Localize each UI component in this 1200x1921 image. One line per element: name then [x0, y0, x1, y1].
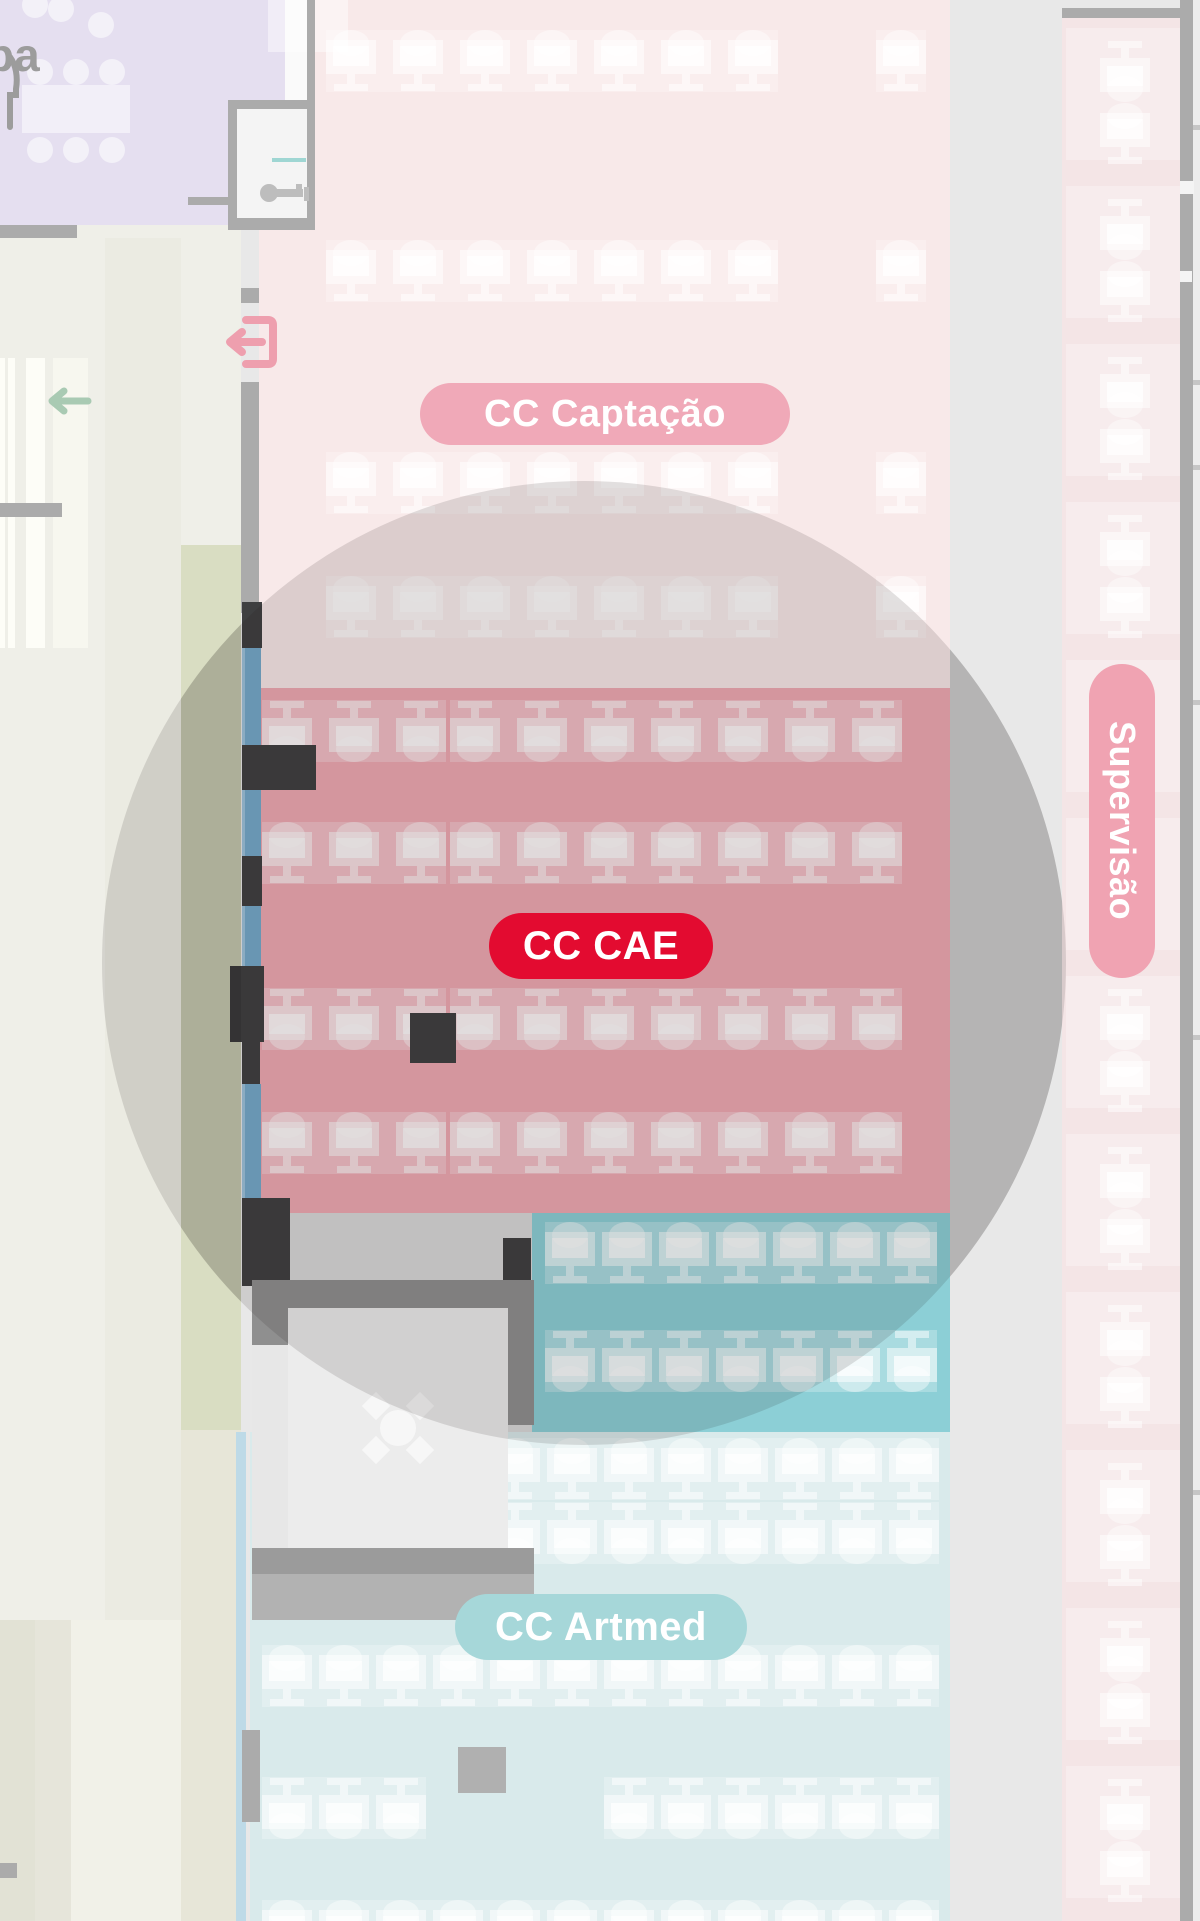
desk-icon: [661, 1438, 711, 1500]
desk-part: [661, 1655, 711, 1689]
desk-icon: [594, 576, 644, 638]
desk-part: [319, 1655, 369, 1689]
desk-part: [548, 74, 556, 84]
desk-part: [283, 1156, 291, 1166]
desk-part: [884, 506, 918, 513]
desk-part: [397, 1785, 405, 1795]
desk-icon: [661, 240, 711, 302]
desk-icon: [594, 30, 644, 92]
desk-part: [659, 1348, 709, 1382]
desk-part: [1121, 463, 1129, 473]
desk-icon: [329, 700, 379, 762]
desk-part: [785, 1122, 835, 1156]
desk-cluster: [876, 240, 926, 302]
desk-part: [401, 84, 435, 91]
wall: [241, 288, 259, 303]
desk-part: [876, 40, 926, 74]
desk-part: [527, 462, 577, 496]
desk-part: [538, 1156, 546, 1166]
desk-part: [511, 1482, 519, 1492]
desk-part: [726, 876, 760, 883]
desk-part: [718, 1910, 768, 1921]
desk-icon: [396, 700, 446, 762]
desk-part: [718, 1655, 768, 1689]
desk-icon: [527, 452, 577, 514]
desk-part: [739, 1482, 747, 1492]
desk-part: [393, 462, 443, 496]
desk-part: [661, 1520, 711, 1554]
desk-part: [584, 718, 634, 752]
desk-part: [604, 1910, 654, 1921]
desk-icon: [785, 988, 835, 1050]
desk-icon: [728, 452, 778, 514]
desk-part: [830, 1348, 880, 1382]
desk-part: [726, 1778, 760, 1785]
desk-cluster: [450, 700, 902, 762]
desk-part: [594, 40, 644, 74]
desk-icon: [718, 1112, 768, 1174]
desk-part: [605, 708, 613, 718]
desk-part: [860, 701, 894, 708]
desk-part: [775, 1795, 825, 1829]
desk-part: [793, 701, 827, 708]
desk-part: [1108, 315, 1142, 322]
desk-part: [783, 1778, 817, 1785]
desk-part: [669, 1492, 703, 1499]
desk-part: [897, 284, 905, 294]
desk-part: [1100, 1219, 1150, 1253]
desk-part: [832, 1520, 882, 1554]
desk-cluster: [450, 822, 902, 884]
desk-part: [1121, 147, 1129, 157]
desk-part: [1121, 305, 1129, 315]
desk-part: [1100, 429, 1150, 463]
desk-part: [547, 1655, 597, 1689]
desk-part: [471, 1156, 479, 1166]
desk-part: [605, 866, 613, 876]
desk-part: [337, 1166, 371, 1173]
desk-part: [584, 832, 634, 866]
desk-cluster: [876, 576, 926, 638]
desk-part: [350, 708, 358, 718]
desk-part: [327, 1778, 361, 1785]
desk-icon: [1100, 40, 1150, 102]
desk-part: [726, 1699, 760, 1706]
desk-icon: [262, 1645, 312, 1707]
desk-part: [460, 40, 510, 74]
desk-cluster: [604, 1777, 939, 1839]
desk-part: [1100, 1693, 1150, 1727]
desk-part: [682, 1785, 690, 1795]
desk-part: [889, 1520, 939, 1554]
desk-icon: [852, 1112, 902, 1174]
desk-icon: [584, 822, 634, 884]
desk-icon: [773, 1330, 823, 1392]
desk-icon: [594, 452, 644, 514]
desk-part: [739, 1689, 747, 1699]
desk-part: [716, 1232, 766, 1266]
desk-cluster: [545, 1222, 937, 1284]
desk-part: [270, 1699, 304, 1706]
desk-icon: [527, 240, 577, 302]
desk-icon: [527, 576, 577, 638]
desk-icon: [319, 1645, 369, 1707]
desk-part: [450, 832, 500, 866]
desk-part: [350, 866, 358, 876]
desk-icon: [527, 30, 577, 92]
desk-part: [908, 1266, 916, 1276]
desk-part: [393, 250, 443, 284]
desk-part: [498, 1699, 532, 1706]
desk-part: [270, 1166, 304, 1173]
desk-part: [525, 701, 559, 708]
desk-icon: [1100, 1051, 1150, 1113]
desk-icon: [1100, 1367, 1150, 1429]
desk-icon: [604, 1777, 654, 1839]
desk-cluster: [326, 452, 778, 514]
desk-part: [1121, 1569, 1129, 1579]
desk-icon: [450, 700, 500, 762]
desk-icon: [1100, 1525, 1150, 1587]
desk-icon: [396, 1112, 446, 1174]
desk-icon: [832, 1900, 882, 1921]
desk-part: [547, 1910, 597, 1921]
zone-label-cc-captacao[interactable]: CC Captação: [420, 383, 790, 445]
desk-icon: [262, 1112, 312, 1174]
desk-part: [659, 989, 693, 996]
desk-part: [376, 1910, 426, 1921]
desk-icon: [547, 1438, 597, 1500]
desk-part: [884, 84, 918, 91]
desk-part: [718, 1795, 768, 1829]
desk-icon: [716, 1330, 766, 1392]
desk-icon: [329, 1112, 379, 1174]
desk-part: [527, 250, 577, 284]
desk-part: [728, 250, 778, 284]
desk-part: [781, 1331, 815, 1338]
desk-part: [319, 1910, 369, 1921]
desk-part: [873, 708, 881, 718]
desk-part: [414, 284, 422, 294]
desk-icon: [1100, 577, 1150, 639]
desk-part: [417, 708, 425, 718]
zone-label-cc-cae[interactable]: CC CAE: [489, 913, 713, 979]
desk-part: [468, 84, 502, 91]
desk-icon: [718, 1900, 768, 1921]
desk-part: [669, 506, 703, 513]
desk-part: [350, 996, 358, 1006]
desk-part: [876, 462, 926, 496]
desk-part: [806, 708, 814, 718]
desk-part: [884, 294, 918, 301]
desk-part: [490, 1655, 540, 1689]
desk-part: [680, 1338, 688, 1348]
desk-part: [775, 1655, 825, 1689]
desk-icon: [490, 1900, 540, 1921]
pillar: [242, 856, 262, 906]
desk-part: [594, 462, 644, 496]
desk-part: [334, 84, 368, 91]
desk-part: [910, 1482, 918, 1492]
desk-icon: [775, 1645, 825, 1707]
desk-part: [726, 1492, 760, 1499]
desk-cluster: [876, 30, 926, 92]
desk-part: [417, 1156, 425, 1166]
desk-icon: [393, 576, 443, 638]
desk-icon: [604, 1502, 654, 1564]
desk-part: [659, 701, 693, 708]
desk-part: [1108, 1263, 1142, 1270]
desk-part: [270, 1778, 304, 1785]
desk-part: [897, 1492, 931, 1499]
desk-part: [775, 1448, 825, 1482]
desk-cluster: [262, 1900, 939, 1921]
desk-part: [661, 40, 711, 74]
desk-part: [326, 586, 376, 620]
desk-part: [1121, 1253, 1129, 1263]
desk-icon: [852, 700, 902, 762]
desk-part: [796, 1785, 804, 1795]
desk-part: [481, 620, 489, 630]
desk-icon: [728, 240, 778, 302]
desk-part: [773, 1232, 823, 1266]
desk-icon: [396, 822, 446, 884]
desk-part: [910, 1785, 918, 1795]
desk-icon: [393, 452, 443, 514]
desk-part: [889, 1448, 939, 1482]
desk-part: [728, 586, 778, 620]
desk-part: [1121, 621, 1129, 631]
desk-part: [262, 1006, 312, 1040]
desk-part: [517, 832, 567, 866]
desk-part: [775, 1520, 825, 1554]
desk-icon: [262, 822, 312, 884]
zone-label-supervisao[interactable]: Supervisão: [1089, 664, 1155, 978]
desk-part: [568, 1482, 576, 1492]
pillar-gray: [458, 1747, 506, 1793]
desk-icon: [517, 822, 567, 884]
desk-icon: [775, 1502, 825, 1564]
wall: [1062, 8, 1193, 18]
desk-icon: [326, 30, 376, 92]
desk-part: [897, 1503, 931, 1510]
desk-part: [1108, 1895, 1142, 1902]
desk-part: [669, 1699, 703, 1706]
desk-part: [1108, 41, 1142, 48]
desk-cluster: [262, 822, 446, 884]
desk-icon: [832, 1645, 882, 1707]
desk-part: [669, 1503, 703, 1510]
desk-part: [612, 1778, 646, 1785]
desk-part: [262, 1655, 312, 1689]
desk-part: [739, 1156, 747, 1166]
desk-part: [785, 718, 835, 752]
desk-part: [908, 1338, 916, 1348]
desk-part: [783, 1492, 817, 1499]
desk-part: [889, 1795, 939, 1829]
desk-part: [262, 1795, 312, 1829]
desk-cluster: [326, 576, 778, 638]
desk-icon: [326, 576, 376, 638]
desk-icon: [329, 822, 379, 884]
desk-part: [873, 1156, 881, 1166]
desk-part: [737, 1338, 745, 1348]
desk-part: [517, 718, 567, 752]
desk-icon: [262, 988, 312, 1050]
desk-part: [739, 1785, 747, 1795]
window-strip: [242, 633, 261, 745]
desk-part: [853, 1785, 861, 1795]
desk-part: [1100, 1061, 1150, 1095]
zone-label-text: CC Artmed: [495, 1605, 707, 1650]
desk-cluster: [326, 30, 778, 92]
desk-part: [667, 1276, 701, 1283]
desk-icon: [728, 576, 778, 638]
desk-part: [1100, 1535, 1150, 1569]
desk-part: [458, 876, 492, 883]
desk-part: [417, 866, 425, 876]
desk-part: [566, 1338, 574, 1348]
desk-part: [887, 1348, 937, 1382]
desk-part: [796, 1510, 804, 1520]
desk-part: [270, 989, 304, 996]
desk-part: [852, 832, 902, 866]
desk-part: [401, 630, 435, 637]
desk-part: [592, 701, 626, 708]
desk-part: [1100, 271, 1150, 305]
desk-part: [840, 1492, 874, 1499]
desk-part: [682, 1482, 690, 1492]
desk-part: [326, 462, 376, 496]
desk-icon: [262, 1777, 312, 1839]
desk-part: [726, 1166, 760, 1173]
desk-part: [396, 832, 446, 866]
desk-part: [884, 630, 918, 637]
desk-part: [610, 1276, 644, 1283]
desk-icon: [785, 822, 835, 884]
desk-part: [450, 1006, 500, 1040]
desk-part: [749, 74, 757, 84]
meeting-table-icon: [360, 1390, 436, 1466]
desk-icon: [889, 1900, 939, 1921]
desk-part: [471, 866, 479, 876]
desk-icon: [594, 240, 644, 302]
desk-part: [584, 1122, 634, 1156]
pillar: [242, 1042, 260, 1084]
desk-part: [873, 996, 881, 1006]
desk-part: [615, 284, 623, 294]
desk-part: [661, 1795, 711, 1829]
desk-icon: [718, 1438, 768, 1500]
desk-part: [659, 1166, 693, 1173]
desk-icon: [661, 1900, 711, 1921]
desk-part: [785, 832, 835, 866]
desk-part: [612, 1699, 646, 1706]
desk-part: [718, 1448, 768, 1482]
shelf-line: [272, 158, 306, 162]
desk-part: [337, 989, 371, 996]
desk-part: [682, 620, 690, 630]
desk-part: [726, 701, 760, 708]
desk-icon: [889, 1438, 939, 1500]
desk-part: [404, 876, 438, 883]
desk-part: [350, 1156, 358, 1166]
desk-part: [327, 1699, 361, 1706]
desk-icon: [659, 1222, 709, 1284]
pillar: [242, 1198, 290, 1286]
desk-part: [329, 1122, 379, 1156]
desk-part: [682, 1689, 690, 1699]
desk-icon: [376, 1645, 426, 1707]
desk-icon: [832, 1438, 882, 1500]
desk-part: [511, 1510, 519, 1520]
desk-part: [806, 1156, 814, 1166]
desk-part: [682, 284, 690, 294]
desk-cluster: [450, 1112, 902, 1174]
desk-part: [517, 1006, 567, 1040]
desk-part: [793, 876, 827, 883]
desk-part: [1108, 1579, 1142, 1586]
wall: [242, 1730, 260, 1822]
desk-icon: [319, 1777, 369, 1839]
desk-part: [270, 876, 304, 883]
desk-part: [793, 1166, 827, 1173]
desk-part: [555, 1492, 589, 1499]
desk-part: [659, 876, 693, 883]
desk-part: [625, 1510, 633, 1520]
desk-icon: [887, 1330, 937, 1392]
desk-part: [417, 996, 425, 1006]
desk-part: [739, 996, 747, 1006]
desk-icon: [1100, 103, 1150, 165]
desk-icon: [545, 1330, 595, 1392]
desk-icon: [659, 1330, 709, 1392]
desk-cluster: [262, 1112, 446, 1174]
desk-part: [283, 1689, 291, 1699]
desk-icon: [262, 1900, 312, 1921]
desk-part: [441, 1699, 475, 1706]
desk-icon: [604, 1438, 654, 1500]
zone-label-cc-artmed[interactable]: CC Artmed: [455, 1594, 747, 1660]
desk-part: [682, 496, 690, 506]
desk-part: [604, 1520, 654, 1554]
desk-part: [592, 876, 626, 883]
desk-part: [329, 1006, 379, 1040]
desk-part: [876, 250, 926, 284]
desk-part: [672, 866, 680, 876]
desk-part: [651, 718, 701, 752]
desk-part: [659, 1232, 709, 1266]
desk-part: [283, 1785, 291, 1795]
desk-part: [806, 866, 814, 876]
desk-part: [602, 294, 636, 301]
zone-label-text: Supervisão: [1101, 721, 1143, 920]
desk-part: [396, 718, 446, 752]
desk-icon: [889, 1645, 939, 1707]
desk-part: [910, 1689, 918, 1699]
desk-icon: [651, 822, 701, 884]
desk-part: [1100, 1851, 1150, 1885]
desk-icon: [319, 1900, 369, 1921]
desk-part: [527, 586, 577, 620]
desk-part: [796, 1482, 804, 1492]
desk-icon: [661, 1777, 711, 1839]
desk-part: [568, 1510, 576, 1520]
desk-part: [724, 1331, 758, 1338]
exit-icon: [222, 313, 280, 371]
desk-part: [661, 250, 711, 284]
desk-part: [605, 996, 613, 1006]
